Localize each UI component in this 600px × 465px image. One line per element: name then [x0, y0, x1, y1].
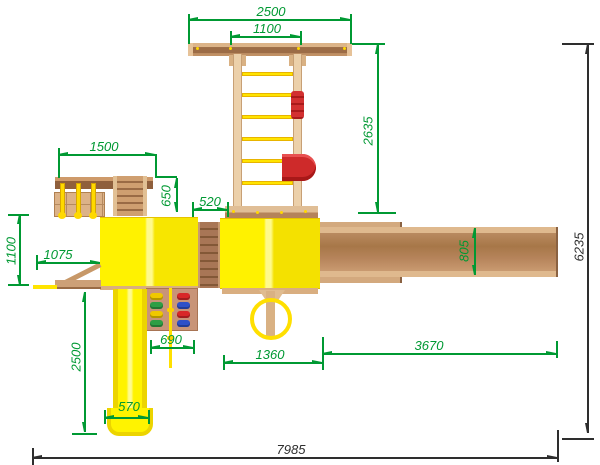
dimension-label: 1075 [44, 248, 73, 261]
extension-line [36, 255, 38, 270]
arrowhead-down [375, 202, 379, 212]
arrowhead-down [174, 202, 178, 212]
dimension-label: 805 [458, 240, 471, 262]
swing-hook [74, 212, 82, 219]
bolt-dot [229, 47, 232, 50]
arrowhead-left [32, 455, 42, 459]
extension-line [223, 355, 225, 370]
extension-line [193, 340, 195, 354]
gym-ladder-rung [242, 115, 293, 119]
bolt-dot [343, 47, 346, 50]
gym-ladder-rung [242, 181, 293, 185]
arrowhead-up [174, 178, 178, 188]
extension-line [352, 43, 385, 45]
arrowhead-right [138, 415, 148, 419]
arrowhead-up [375, 44, 379, 54]
ramp-side-rail [320, 276, 402, 283]
leader-line [155, 154, 157, 177]
crossbar-end-cap [188, 43, 193, 56]
dimension-label: 1100 [253, 22, 281, 35]
climbing-hold [177, 293, 190, 300]
extension-line [300, 31, 302, 45]
arrowhead-down [472, 265, 476, 275]
crossbar-beam [188, 43, 352, 56]
bolt-dot [256, 211, 259, 214]
gym-ladder-rung [242, 72, 293, 76]
extension-line [8, 284, 29, 286]
arrowhead-right [547, 455, 557, 459]
climbing-hold [150, 302, 163, 309]
dimension-label: 2500 [257, 5, 286, 18]
arrowhead-right [90, 260, 100, 264]
gym-ladder-rail-right [293, 54, 302, 212]
dimension-label: 520 [199, 195, 221, 208]
climbing-hold [150, 320, 163, 327]
extension-line [72, 433, 97, 435]
ramp-beam-deck [320, 233, 556, 271]
balcony-rail [33, 285, 57, 289]
bridge-walkway [198, 222, 220, 288]
arrowhead-left [223, 360, 233, 364]
dimension-label: 6235 [573, 233, 586, 262]
bolt-dot [232, 210, 235, 213]
extension-line [192, 202, 194, 217]
gym-ladder-rail-left [233, 54, 242, 212]
access-ladder [113, 176, 147, 216]
gym-ladder-rung [242, 137, 293, 141]
arrowhead-left [150, 345, 160, 349]
arrowhead-up [585, 44, 589, 54]
arrowhead-left [322, 351, 332, 355]
extension-line [58, 148, 60, 178]
slide-chute [113, 289, 147, 411]
arrowhead-up [472, 228, 476, 238]
extension-line [148, 410, 150, 424]
dimension-label: 570 [118, 400, 140, 413]
dimension-line [377, 44, 379, 212]
swing-hook [58, 212, 66, 219]
dimension-label: 1100 [5, 237, 18, 265]
extension-line [150, 340, 152, 354]
bolt-dot [304, 210, 307, 213]
arrowhead-left [58, 152, 68, 156]
arrowhead-right [546, 351, 556, 355]
arrowhead-left [188, 17, 198, 21]
arrowhead-right [340, 17, 350, 21]
steering-wheel [250, 298, 292, 340]
climbing-rope [169, 288, 172, 368]
playground-top-view-drawing: 2500 1100 2635 1500 650 [0, 0, 600, 465]
dimension-line [84, 292, 86, 432]
climbing-hold [150, 311, 163, 318]
extension-line [358, 212, 396, 214]
climbing-hold [177, 302, 190, 309]
dimension-line [587, 44, 589, 433]
dimension-line [58, 154, 155, 156]
arrowhead-right [312, 360, 322, 364]
arrowhead-right [290, 34, 300, 38]
extension-line [350, 14, 352, 44]
rope-knot [167, 308, 174, 312]
arrowhead-left [104, 415, 114, 419]
dimension-label: 2500 [70, 343, 83, 372]
dimension-line [32, 457, 557, 459]
right-tower-roof [220, 218, 320, 289]
red-seat [282, 154, 316, 181]
dimension-line [223, 362, 322, 364]
swing-hook [89, 212, 97, 219]
extension-line [562, 43, 594, 45]
bolt-dot [297, 47, 300, 50]
left-tower-roof [100, 217, 198, 289]
dimension-label: 3670 [415, 339, 444, 352]
arrowhead-right [145, 152, 155, 156]
extension-line [188, 14, 190, 44]
dimension-label: 690 [160, 333, 182, 346]
dimension-label: 1500 [90, 140, 119, 153]
extension-line [104, 410, 106, 424]
arrowhead-down [82, 422, 86, 432]
arrowhead-left [230, 34, 240, 38]
extension-line [8, 214, 29, 216]
bolt-dot [196, 47, 199, 50]
balcony-plank [55, 280, 101, 289]
extension-line [557, 430, 559, 462]
dimension-label: 2635 [362, 117, 375, 146]
dimension-label: 650 [160, 185, 173, 207]
dimension-line [322, 353, 556, 355]
arrowhead-up [17, 214, 21, 224]
extension-line [32, 448, 34, 465]
crossbar-end-cap [347, 43, 352, 56]
dimension-label: 1360 [256, 348, 285, 361]
extension-line [556, 341, 558, 358]
extension-line [322, 337, 324, 370]
arrowhead-up [82, 292, 86, 302]
gym-ladder-rung [242, 93, 293, 97]
arrowhead-right [183, 345, 193, 349]
climbing-hold [177, 311, 190, 318]
arrowhead-down [585, 423, 589, 433]
ramp-beam-edge [320, 271, 556, 277]
climbing-hold [177, 320, 190, 327]
red-handle [291, 91, 304, 119]
extension-line [227, 202, 229, 217]
bolt-dot [280, 211, 283, 214]
dimension-label: 7985 [277, 443, 306, 456]
climbing-hold [150, 293, 163, 300]
extension-line [562, 438, 594, 440]
ramp-beam [320, 227, 558, 277]
extension-line [230, 31, 232, 45]
